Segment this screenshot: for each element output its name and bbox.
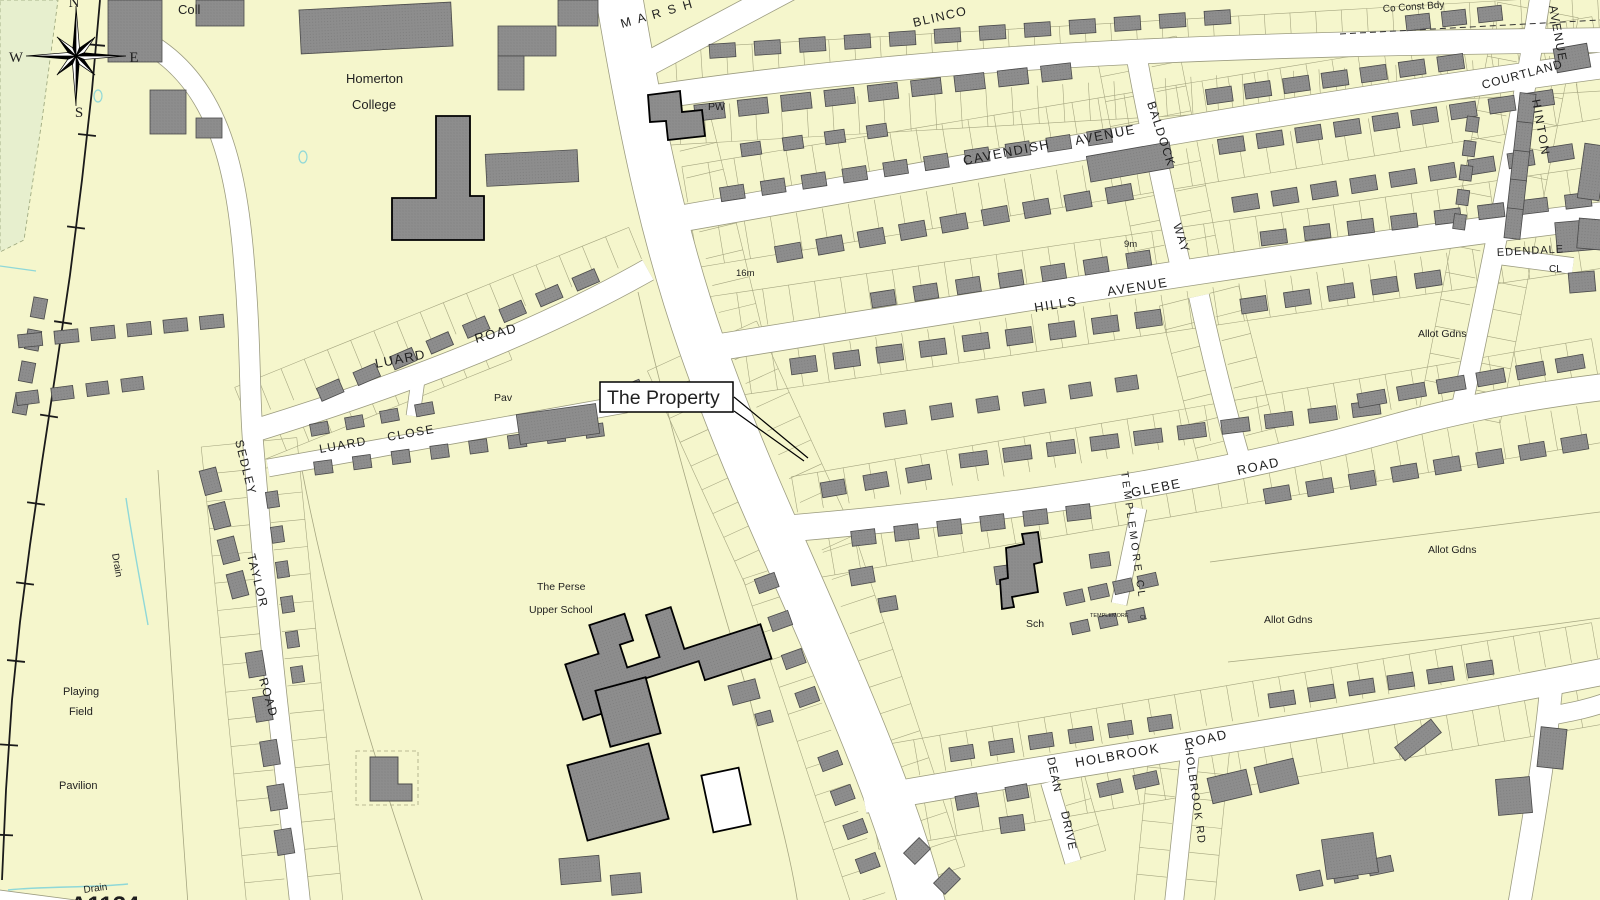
label-spot-height-16m: 16m [736,268,755,279]
label-a1134: A1134 [70,892,140,900]
label-pavilion: Pavilion [59,780,98,792]
label-compass-s: S [75,105,83,121]
label-spot-height-9m: 9m [1124,239,1137,250]
label-templemore-small: TEMPLEMORE [1090,613,1129,619]
label-playing: Playing [63,686,99,698]
label-coll: Coll [178,2,201,17]
label-perse-1: The Perse [537,581,586,593]
label-edendale-cl: CL [1549,264,1562,275]
label-templemore-small-cl: CL [1140,615,1147,621]
label-allot-gdns-2: Allot Gdns [1428,544,1476,556]
property-callout-label: The Property [607,387,720,409]
label-sch: Sch [1026,618,1044,630]
label-perse-2: Upper School [529,604,593,616]
label-homerton-2: College [352,97,396,112]
label-allot-gdns-1: Allot Gdns [1418,328,1466,340]
label-homerton-1: Homerton [346,71,403,86]
label-compass-w: W [9,50,24,66]
label-field: Field [69,706,93,718]
street-map: CollHomertonCollegeM A R S HBLINCOPWCo C… [0,0,1600,900]
label-allot-gdns-3: Allot Gdns [1264,614,1312,626]
label-pav: Pav [494,392,513,404]
map-canvas: CollHomertonCollegeM A R S HBLINCOPWCo C… [0,0,1600,900]
label-compass-e: E [129,50,138,66]
label-pw: PW [708,101,725,113]
label-compass-n: N [69,0,80,11]
